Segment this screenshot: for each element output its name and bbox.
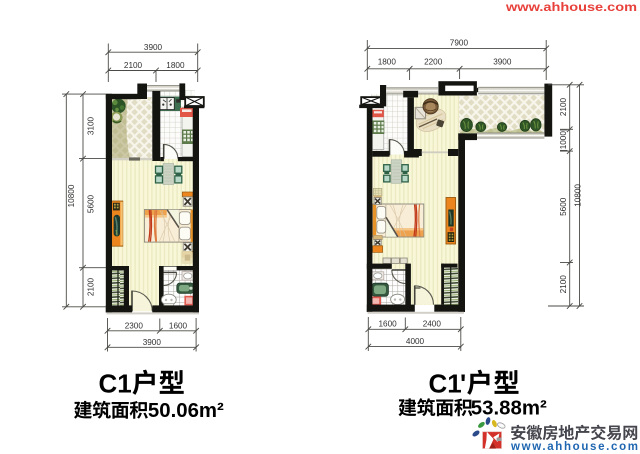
svg-text:www.ahhouse.com: www.ahhouse.com (510, 441, 638, 453)
svg-text:5600: 5600 (87, 194, 96, 213)
svg-text:3900: 3900 (143, 338, 162, 347)
svg-text:2100: 2100 (559, 275, 568, 294)
svg-text:1800: 1800 (378, 58, 397, 67)
svg-text:C1: C1 (99, 368, 132, 398)
svg-text:50.06m²: 50.06m² (148, 400, 224, 422)
svg-text:1800: 1800 (166, 61, 185, 70)
svg-text:1600: 1600 (378, 320, 397, 329)
svg-text:3900: 3900 (144, 43, 163, 52)
svg-text:3900: 3900 (493, 58, 512, 67)
svg-text:5600: 5600 (559, 197, 568, 216)
svg-text:3100: 3100 (87, 116, 96, 135)
svg-text:2100: 2100 (559, 97, 568, 116)
svg-text:10800: 10800 (67, 184, 76, 207)
svg-text:7900: 7900 (450, 38, 469, 47)
svg-text:2300: 2300 (125, 321, 144, 330)
svg-text:53.88m²: 53.88m² (471, 398, 547, 420)
svg-text:1600: 1600 (169, 321, 188, 330)
svg-text:2100: 2100 (124, 61, 143, 70)
svg-text:2100: 2100 (87, 277, 96, 296)
svg-text:2200: 2200 (424, 58, 443, 67)
svg-text:|1000|: |1000| (559, 129, 568, 151)
svg-text:C1: C1 (429, 368, 462, 398)
svg-text:': ' (460, 368, 466, 398)
svg-text:www.ahhouse.com: www.ahhouse.com (505, 0, 637, 14)
svg-text:2400: 2400 (423, 320, 442, 329)
svg-text:10800: 10800 (574, 184, 583, 207)
svg-text:4000: 4000 (406, 337, 425, 346)
